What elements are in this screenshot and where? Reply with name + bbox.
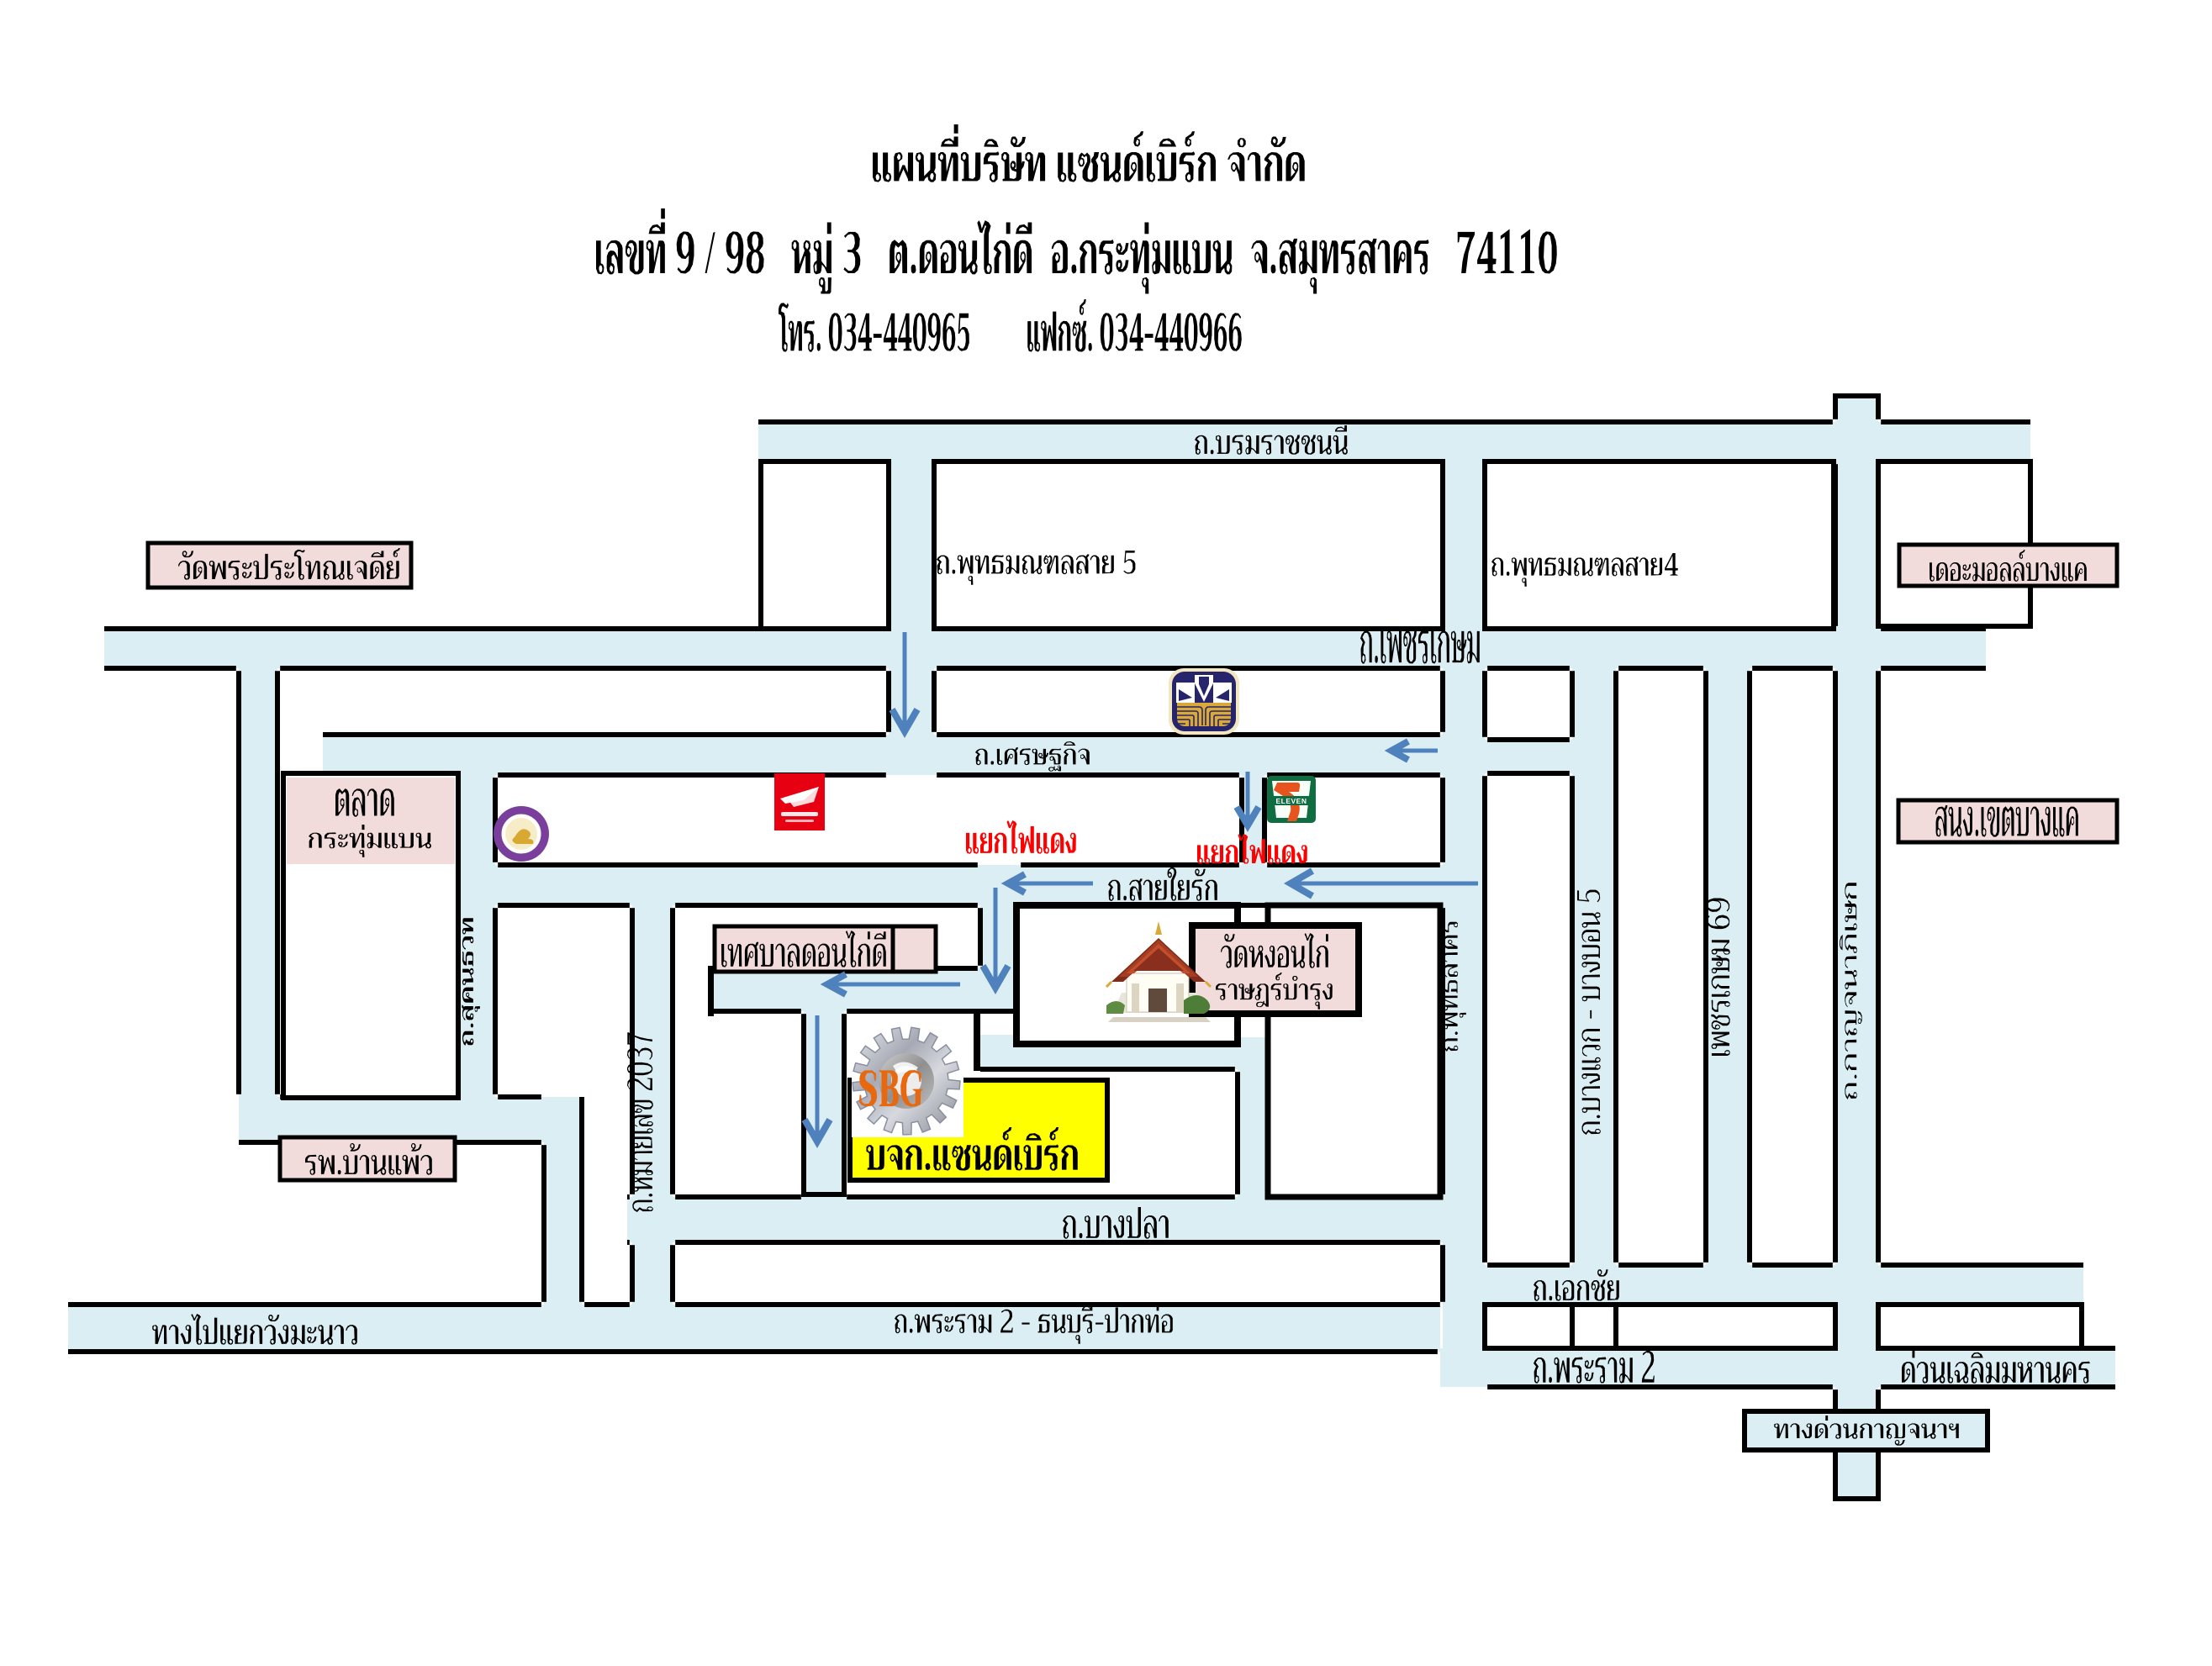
svg-text:ELEVEN: ELEVEN [1275, 797, 1307, 805]
